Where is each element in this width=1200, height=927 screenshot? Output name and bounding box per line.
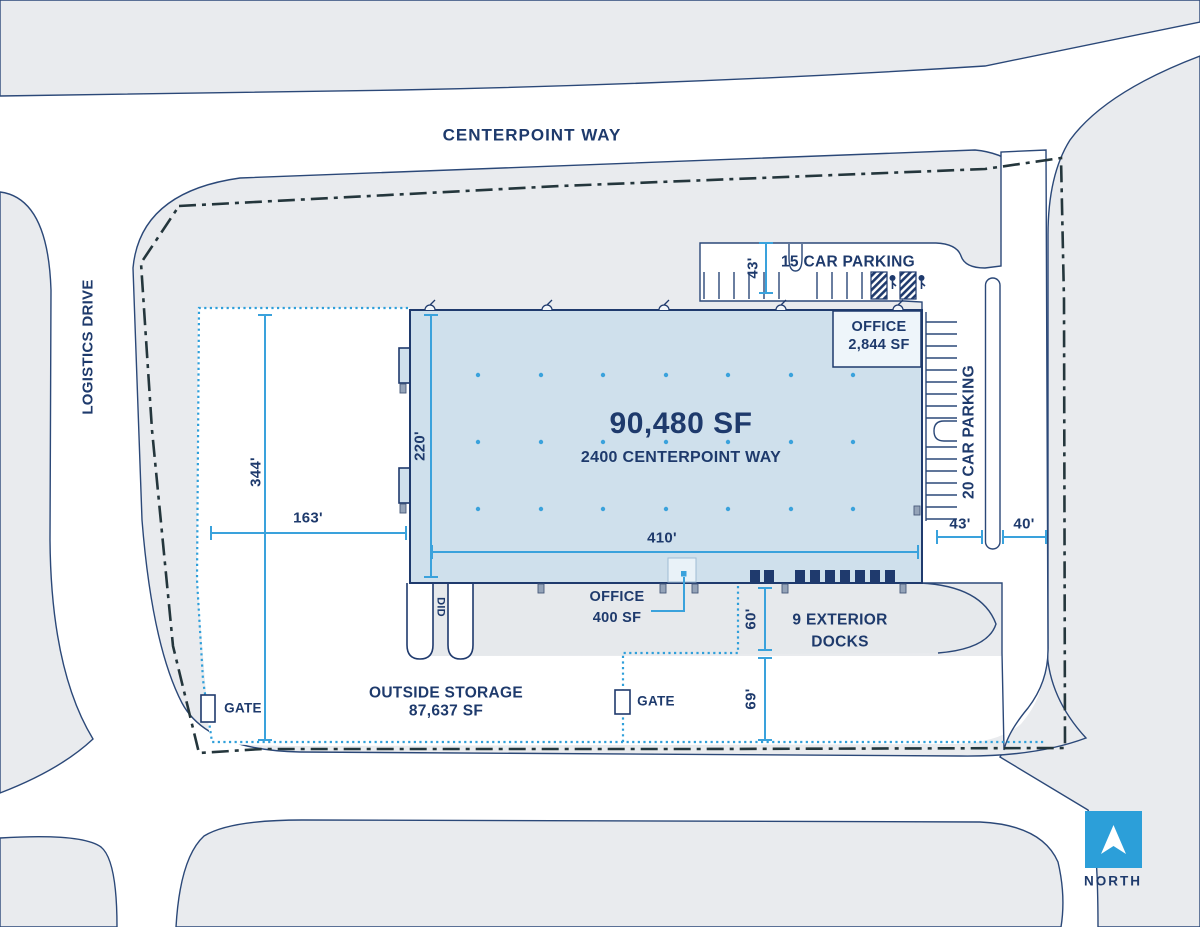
north-arrow (1085, 811, 1142, 868)
dim-label-43-right: 43' (949, 517, 970, 532)
building-address-label: 2400 CENTERPOINT WAY (581, 450, 781, 466)
drive-island (986, 278, 1001, 549)
office-upper-label-line1: OFFICE (852, 320, 907, 335)
docks-label-line1: 9 EXTERIOR (792, 612, 887, 628)
parking-right-label: 20 CAR PARKING (961, 365, 977, 499)
docks-label-line2: DOCKS (811, 634, 868, 650)
office-lower-leader-dot (681, 571, 687, 577)
gate-icon-south (615, 690, 630, 714)
drive-in-door-label: DID (435, 597, 446, 617)
dim-label-163: 163' (293, 511, 323, 526)
parking-top-label: 15 CAR PARKING (781, 254, 915, 270)
dim-label-43-top: 43' (746, 257, 761, 278)
street-label-centerpoint-way: CENTERPOINT WAY (443, 127, 622, 144)
gate-west-label: GATE (224, 701, 262, 715)
dim-label-410: 410' (647, 531, 677, 546)
office-lower-inset (668, 558, 696, 582)
office-upper-label-line2: 2,844 SF (848, 338, 909, 353)
dim-label-344: 344' (249, 457, 264, 487)
parking-island-right (934, 421, 957, 441)
street-label-logistics-drive: LOGISTICS DRIVE (81, 279, 96, 414)
dim-label-60: 60' (744, 608, 759, 629)
truck-court-apron (410, 583, 996, 656)
site-plan: CENTERPOINT WAY LOGISTICS DRIVE 15 CAR P… (0, 0, 1200, 927)
office-lower-label-line2: 400 SF (593, 611, 642, 626)
gate-icon-west (201, 695, 215, 722)
office-lower-label-line1: OFFICE (590, 590, 645, 605)
dim-label-220: 220' (413, 431, 428, 461)
building-area-label: 90,480 SF (610, 409, 753, 439)
north-label: NORTH (1084, 874, 1142, 888)
dim-label-69: 69' (744, 688, 759, 709)
block-bottom-left (0, 837, 117, 927)
storage-label-line2: 87,637 SF (409, 703, 483, 719)
dim-label-40-right: 40' (1013, 517, 1034, 532)
gate-south-label: GATE (637, 694, 675, 708)
block-bottom-center (176, 820, 1063, 927)
storage-label-line1: OUTSIDE STORAGE (369, 685, 523, 701)
